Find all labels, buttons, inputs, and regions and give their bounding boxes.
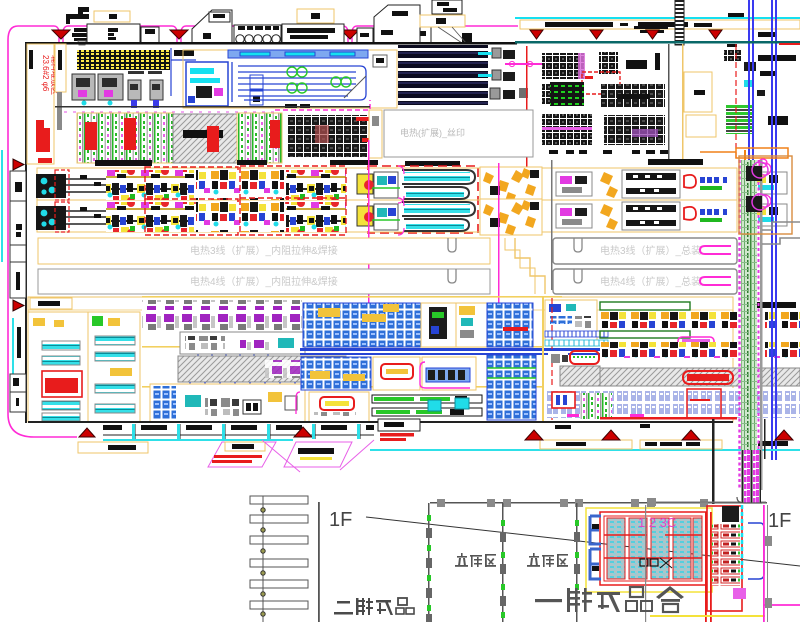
svg-text:电热3线（扩展）_内阻拉伸&焊接: 电热3线（扩展）_内阻拉伸&焊接 (190, 244, 338, 257)
svg-text:电热(扩展)_丝印: 电热(扩展)_丝印 (400, 127, 465, 138)
svg-text:电热4线（扩展）_总装: 电热4线（扩展）_总装 (600, 275, 701, 288)
svg-text:电热4线（扩展）_内阻拉伸&焊接: 电热4线（扩展）_内阻拉伸&焊接 (190, 275, 338, 288)
svg-text:23.6#2 φ6: 23.6#2 φ6 (41, 55, 50, 92)
svg-text:1F: 1F (768, 510, 791, 532)
svg-text:1 2 3C: 1 2 3C (638, 515, 676, 530)
svg-text:电热3线（扩展）_总装: 电热3线（扩展）_总装 (600, 244, 701, 257)
svg-text:1F: 1F (329, 509, 352, 531)
